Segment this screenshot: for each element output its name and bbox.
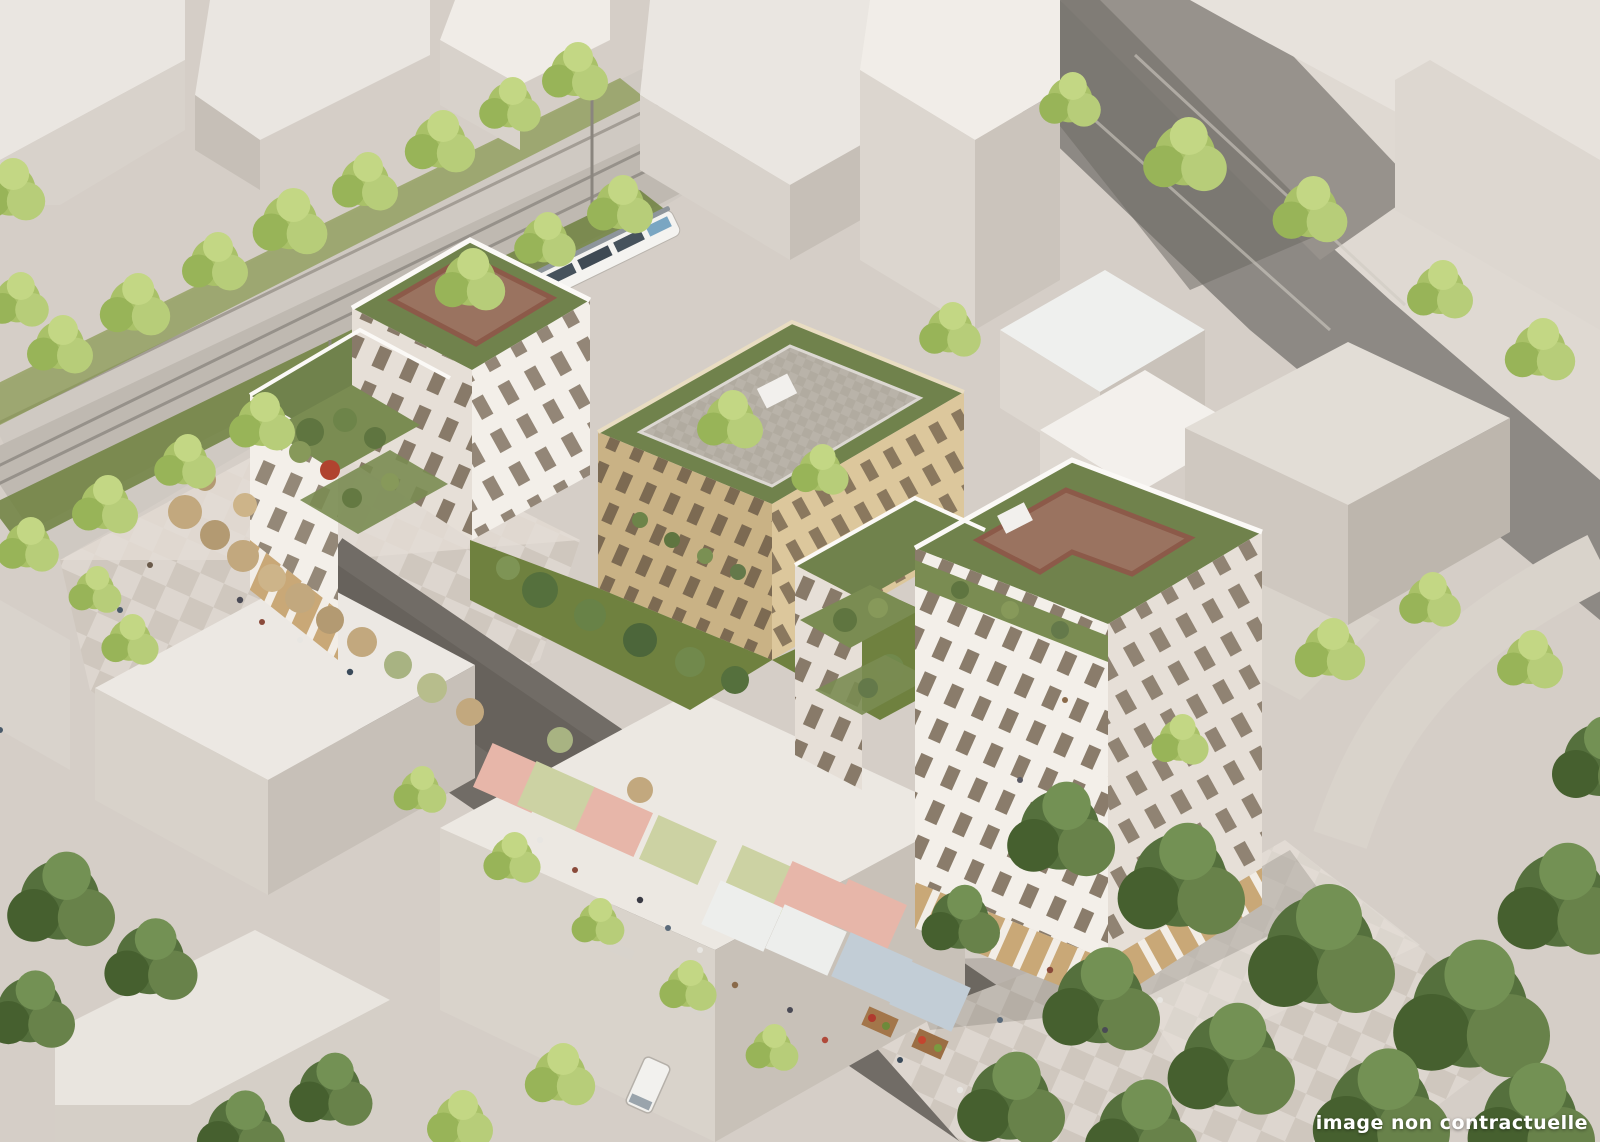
- aerial-render-image: image non contractuelle: [0, 0, 1600, 1142]
- scene: [0, 0, 1600, 1142]
- image-disclaimer: image non contractuelle: [1316, 1112, 1588, 1134]
